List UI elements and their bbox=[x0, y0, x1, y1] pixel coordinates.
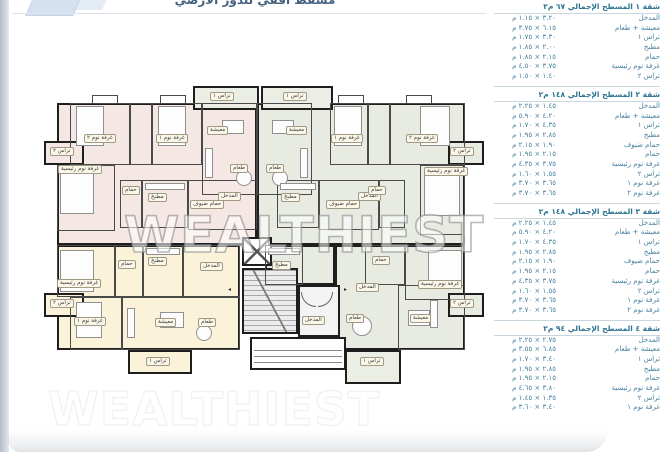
dimension-row: تراس ١٣.٣٠ × ١.٧٥ م bbox=[494, 33, 660, 43]
room-name: تراس ٢ bbox=[556, 287, 660, 297]
room-dimensions: ٦.١٥ × ٣.٧٥ م bbox=[494, 24, 556, 34]
room-label: غرفة نوم ١ bbox=[156, 134, 188, 143]
dimension-row: غرفة نوم ١٣.٦٥ × ٣.٧٠ م bbox=[494, 296, 660, 306]
room-dimensions: ١.٩٠ × ٢.١٥ م bbox=[494, 257, 556, 267]
room-dimensions: ٢.١٥ × ١.٩٥ م bbox=[494, 267, 556, 277]
room-label: طعام bbox=[346, 314, 364, 323]
sofa bbox=[300, 148, 308, 178]
room-dimensions: ٣.٦٥ × ٣.٧٠ م bbox=[494, 306, 556, 316]
entrance-porch bbox=[250, 337, 346, 370]
room-label: المدخل bbox=[302, 316, 325, 325]
room-dimensions: ١.٩٠ × ٢.١٥ م bbox=[494, 141, 556, 151]
room-name: المدخل bbox=[556, 336, 660, 346]
apartment-1-section: شقة ١ المسطح الإجمالي ٦٧ م٢ المدخل٣.٢٠ ×… bbox=[492, 0, 666, 86]
room-label: حمام bbox=[122, 186, 140, 195]
dimension-row: حمام٢.١٥ × ١.٩٥ م bbox=[494, 150, 660, 160]
room-name: المدخل bbox=[556, 102, 660, 112]
dimension-row: غرفة نوم رئيسية٣.٧٥ × ٤.٥٠ م bbox=[494, 62, 660, 72]
room-name: غرفة نوم ١ bbox=[556, 179, 660, 189]
room-label: غرفة نوم رئيسية bbox=[58, 165, 102, 174]
room-name: تراس ١ bbox=[556, 355, 660, 365]
room-label: تراس ٢ bbox=[450, 147, 474, 156]
room-name: غرفة نوم رئيسية bbox=[556, 160, 660, 170]
room-dimensions: ٣.٧٥ × ٤.٣٥ م bbox=[494, 160, 556, 170]
room-name: حمام ضيوف bbox=[556, 141, 660, 151]
room-label: غرفة نوم ٢ bbox=[84, 134, 116, 143]
room-label: تراس ١ bbox=[146, 357, 170, 366]
apartment-3-rows: المدخل١.٤٥ × ٢.٢٥ ممعيشة + طعام٤.٢٠ × ٥.… bbox=[494, 219, 660, 316]
kitchen-counter bbox=[145, 183, 185, 190]
room-label: تراس ١ bbox=[360, 357, 384, 366]
room-dimensions: ٣.٦٥ × ٣.٧٠ م bbox=[494, 296, 556, 306]
room-name: حمام ضيوف bbox=[556, 257, 660, 267]
room-dimensions: ٢.٧٥ × ٢.٢٥ م bbox=[494, 336, 556, 346]
room-dimensions: ٤.٢٠ × ٥.٩٠ م bbox=[494, 228, 556, 238]
apartment-4-rows: المدخل٢.٧٥ × ٢.٢٥ ممعيشة + طعام٦.٨٥ × ٣.… bbox=[494, 336, 660, 414]
dining-table bbox=[196, 325, 212, 341]
porch-step bbox=[254, 350, 342, 351]
dimension-row: تراس ٢١.٥٥ × ١.٦٠ م bbox=[494, 287, 660, 297]
room-label: تراس ١ bbox=[210, 92, 234, 101]
room-dimensions: ٣.٦٥ × ٣.٧٠ م bbox=[494, 189, 556, 199]
room-dimensions: ٢.١٥ × ١.٩٥ م bbox=[494, 374, 556, 384]
dimension-row: تراس ١٣.٤٠ × ١.٧٠ م bbox=[494, 355, 660, 365]
direction-marker: ◂ bbox=[228, 286, 231, 293]
room-name: تراس ٢ bbox=[556, 394, 660, 404]
dimension-row: غرفة نوم رئيسية٣.٨٠ × ٤.٦٥ م bbox=[494, 384, 660, 394]
dimension-row: غرفة نوم رئيسية٣.٧٥ × ٤.٣٥ م bbox=[494, 160, 660, 170]
room-label: معيشة bbox=[207, 126, 228, 135]
room-dimensions: ١.٥٥ × ١.٦٠ م bbox=[494, 287, 556, 297]
dimension-row: تراس ٢١.٣٥ × ١.٤٥ م bbox=[494, 394, 660, 404]
direction-marker: ▸ bbox=[344, 286, 347, 293]
room-name: تراس ١ bbox=[556, 121, 660, 131]
room-name: غرفة نوم ٢ bbox=[556, 306, 660, 316]
room-label: غرفة نوم رئيسية bbox=[57, 279, 101, 288]
dimension-row: غرفة نوم ١٣.٤٠ × ٣.٦٠ م bbox=[494, 403, 660, 413]
room-label: غرفة نوم رئيسية bbox=[418, 280, 462, 289]
dimension-row: تراس ٢١.٤٠ × ١.٥٠ م bbox=[494, 72, 660, 82]
room-dimensions: ٢.١٥ × ١.٩٥ م bbox=[494, 150, 556, 160]
apartment-2-title: شقة ٢ المسطح الإجمالي ١٤٨ م٢ bbox=[494, 86, 660, 102]
room-name: مطبخ bbox=[556, 365, 660, 375]
room-label: غرفة نوم ١ bbox=[74, 317, 106, 326]
room-name: معيشة + طعام bbox=[556, 228, 660, 238]
room-dimensions: ٣.٢٠ × ١.١٥ م bbox=[494, 14, 556, 24]
room-name: المدخل bbox=[556, 219, 660, 229]
room-name: معيشة + طعام bbox=[556, 24, 660, 34]
dimension-row: المدخل١.٤٥ × ٢.٢٥ م bbox=[494, 102, 660, 112]
terrace-bottom-right bbox=[345, 350, 401, 384]
dimension-row: المدخل٢.٧٥ × ٢.٢٥ م bbox=[494, 336, 660, 346]
room-label: طعام bbox=[198, 318, 216, 327]
room-dimensions: ٢.٠٠ × ١.٨٥ م bbox=[494, 43, 556, 53]
apartment-4-title: شقة ٤ المسطح الإجمالي ٩٤ م٢ bbox=[494, 320, 660, 336]
dimension-row: تراس ١٤.٣٥ × ١.٧٠ م bbox=[494, 238, 660, 248]
room-label: طعام bbox=[230, 164, 248, 173]
dimension-row: حمام ضيوف١.٩٠ × ٢.١٥ م bbox=[494, 141, 660, 151]
dimension-row: غرفة نوم رئيسية٣.٧٥ × ٤.٣٥ م bbox=[494, 277, 660, 287]
room-name: حمام bbox=[556, 53, 660, 63]
room-name: مطبخ bbox=[556, 131, 660, 141]
dimension-row: معيشة + طعام٤.٢٠ × ٥.٩٠ م bbox=[494, 112, 660, 122]
apartment-1-rows: المدخل٣.٢٠ × ١.١٥ ممعيشة + طعام٦.١٥ × ٣.… bbox=[494, 14, 660, 82]
porch-step bbox=[254, 356, 342, 357]
room-name: غرفة نوم رئيسية bbox=[556, 62, 660, 72]
room-dimensions: ٦.٨٥ × ٣.٥٥ م bbox=[494, 345, 556, 355]
dimension-row: غرفة نوم ١٣.٦٥ × ٣.٧٠ م bbox=[494, 179, 660, 189]
room-label: تراس ١ bbox=[283, 92, 307, 101]
room-dimensions: ١.٤٥ × ٢.٢٥ م bbox=[494, 102, 556, 112]
dimension-row: حمام ضيوف١.٩٠ × ٢.١٥ م bbox=[494, 257, 660, 267]
room-label: المدخل bbox=[218, 192, 241, 201]
room-label: معيشة bbox=[155, 318, 176, 327]
dimension-row: المدخل٣.٢٠ × ١.١٥ م bbox=[494, 14, 660, 24]
dimension-row: مطبخ٢.٠٠ × ١.٨٥ م bbox=[494, 43, 660, 53]
room-dimensions: ١.٣٥ × ١.٤٥ م bbox=[494, 394, 556, 404]
sofa bbox=[205, 148, 213, 178]
room-name: حمام bbox=[556, 267, 660, 277]
room-dimensions: ٣.٧٥ × ٤.٥٠ م bbox=[494, 62, 556, 72]
room-dimensions: ٣.٦٥ × ٣.٧٠ م bbox=[494, 179, 556, 189]
room-label: مطبخ bbox=[281, 193, 300, 202]
room-name: غرفة نوم رئيسية bbox=[556, 277, 660, 287]
room-dimensions: ٤.٣٥ × ١.٧٠ م bbox=[494, 121, 556, 131]
room-dimensions: ٣.٨٠ × ٤.٦٥ م bbox=[494, 384, 556, 394]
room-name: معيشة + طعام bbox=[556, 345, 660, 355]
room-name: غرفة نوم ١ bbox=[556, 296, 660, 306]
wardrobe-column bbox=[130, 103, 152, 165]
room-name: حمام bbox=[556, 150, 660, 160]
dimension-row: معيشة + طعام٦.١٥ × ٣.٧٥ م bbox=[494, 24, 660, 34]
porch-step bbox=[254, 362, 342, 363]
room-dimensions: ٢.٨٥ × ١.٩٥ م bbox=[494, 131, 556, 141]
apartment-3-section: شقة ٣ المسطح الإجمالي ١٤٨ م٢ المدخل١.٤٥ … bbox=[492, 203, 666, 320]
dimension-row: معيشة + طعام٤.٢٠ × ٥.٩٠ م bbox=[494, 228, 660, 238]
room-label: تراس ٢ bbox=[50, 147, 74, 156]
dimension-row: حمام٢.١٥ × ١.٨٥ م bbox=[494, 53, 660, 63]
room-name: تراس ١ bbox=[556, 238, 660, 248]
wardrobe-column bbox=[368, 103, 390, 165]
dimension-row: تراس ٢١.٥٥ × ١.٦٠ م bbox=[494, 170, 660, 180]
room-dimensions: ٢.٨٥ × ١.٩٥ م bbox=[494, 248, 556, 258]
apartment-1-title: شقة ١ المسطح الإجمالي ٦٧ م٢ bbox=[494, 0, 660, 14]
room-name: معيشة + طعام bbox=[556, 112, 660, 122]
room-label: معيشة bbox=[286, 126, 307, 135]
room-name: تراس ٢ bbox=[556, 72, 660, 82]
dimension-row: حمام٢.١٥ × ١.٩٥ م bbox=[494, 267, 660, 277]
dimension-row: مطبخ٢.٨٥ × ١.٩٥ م bbox=[494, 248, 660, 258]
room-dimensions: ٢.٨٥ × ١.٩٥ م bbox=[494, 365, 556, 375]
dimension-row: غرفة نوم ٢٣.٦٥ × ٣.٧٠ م bbox=[494, 189, 660, 199]
apartment-2-section: شقة ٢ المسطح الإجمالي ١٤٨ م٢ المدخل١.٤٥ … bbox=[492, 86, 666, 203]
room-dimensions: ٣.٤٠ × ١.٧٠ م bbox=[494, 355, 556, 365]
room-label: غرفة نوم رئيسية bbox=[424, 167, 468, 176]
room-dimensions: ٣.٤٠ × ٣.٦٠ م bbox=[494, 403, 556, 413]
room-label: غرفة نوم ١ bbox=[331, 134, 363, 143]
room-label: غرفة نوم ٢ bbox=[406, 134, 438, 143]
room-name: حمام bbox=[556, 374, 660, 384]
room-dimensions: ١.٥٥ × ١.٦٠ م bbox=[494, 170, 556, 180]
dimensions-panel: شقة ١ المسطح الإجمالي ٦٧ م٢ المدخل٣.٢٠ ×… bbox=[492, 0, 666, 417]
room-name: مطبخ bbox=[556, 43, 660, 53]
dimension-row: غرفة نوم ٢٣.٦٥ × ٣.٧٠ م bbox=[494, 306, 660, 316]
apartment-4-section: شقة ٤ المسطح الإجمالي ٩٤ م٢ المدخل٢.٧٥ ×… bbox=[492, 320, 666, 418]
dimension-row: المدخل١.٤٥ × ٢.٢٥ م bbox=[494, 219, 660, 229]
room-name: غرفة نوم رئيسية bbox=[556, 384, 660, 394]
room-label: المدخل bbox=[356, 283, 379, 292]
room-dimensions: ١.٤٥ × ٢.٢٥ م bbox=[494, 219, 556, 229]
room-label: طعام bbox=[266, 164, 284, 173]
room-label: مطبخ bbox=[148, 193, 167, 202]
room-label: معيشة bbox=[410, 314, 431, 323]
room-dimensions: ٢.١٥ × ١.٨٥ م bbox=[494, 53, 556, 63]
dimension-row: معيشة + طعام٦.٨٥ × ٣.٥٥ م bbox=[494, 345, 660, 355]
room-dimensions: ١.٤٠ × ١.٥٠ م bbox=[494, 72, 556, 82]
dimension-row: مطبخ٢.٨٥ × ١.٩٥ م bbox=[494, 365, 660, 375]
watermark-text: WEALTHIEST bbox=[124, 206, 554, 264]
room-name: تراس ٢ bbox=[556, 170, 660, 180]
kitchen-counter bbox=[280, 183, 316, 190]
sofa bbox=[127, 308, 135, 338]
room-name: مطبخ bbox=[556, 248, 660, 258]
room-name: غرفة نوم ١ bbox=[556, 403, 660, 413]
apartment-2-rows: المدخل١.٤٥ × ٢.٢٥ ممعيشة + طعام٤.٢٠ × ٥.… bbox=[494, 102, 660, 199]
sofa bbox=[430, 300, 438, 328]
room-name: تراس ١ bbox=[556, 33, 660, 43]
room-dimensions: ٤.٢٠ × ٥.٩٠ م bbox=[494, 112, 556, 122]
room-name: غرفة نوم ٢ bbox=[556, 189, 660, 199]
dimension-row: حمام٢.١٥ × ١.٩٥ م bbox=[494, 374, 660, 384]
dimension-row: مطبخ٢.٨٥ × ١.٩٥ م bbox=[494, 131, 660, 141]
room-dimensions: ٣.٣٠ × ١.٧٥ م bbox=[494, 33, 556, 43]
room-label: تراس ٢ bbox=[50, 299, 74, 308]
dimension-row: تراس ١٤.٣٥ × ١.٧٠ م bbox=[494, 121, 660, 131]
room-label: تراس ٢ bbox=[450, 299, 474, 308]
room-name: المدخل bbox=[556, 14, 660, 24]
room-dimensions: ٤.٣٥ × ١.٧٠ م bbox=[494, 238, 556, 248]
room-label: حمام bbox=[368, 186, 386, 195]
apartment-3-title: شقة ٣ المسطح الإجمالي ١٤٨ م٢ bbox=[494, 203, 660, 219]
bed bbox=[60, 172, 94, 214]
room-dimensions: ٣.٧٥ × ٤.٣٥ م bbox=[494, 277, 556, 287]
